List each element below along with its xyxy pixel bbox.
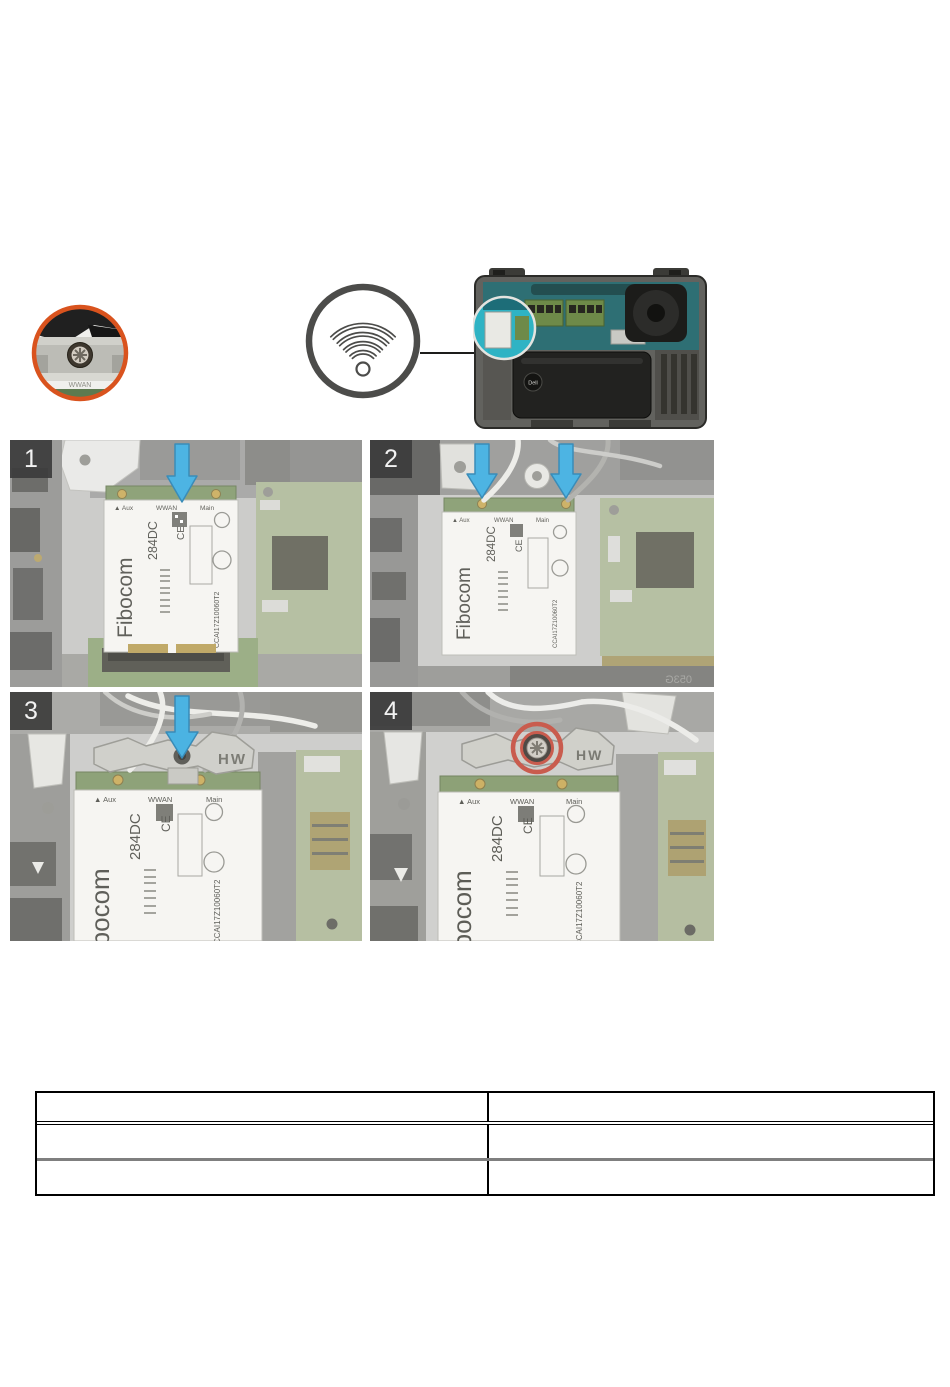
laptop-internals-photo: Dell: [473, 268, 708, 434]
table-cell: [489, 1161, 933, 1194]
table-cell: [489, 1125, 933, 1158]
table-cell: [37, 1093, 489, 1121]
fan: [625, 284, 687, 342]
table-row: [37, 1125, 933, 1161]
wireless-icon: [303, 281, 423, 401]
steps-grid: 1: [10, 440, 714, 941]
info-table: [35, 1091, 935, 1196]
step-panel-3: 3: [10, 692, 362, 941]
step-number-badge: 1: [10, 440, 52, 478]
table-cell: [489, 1093, 933, 1121]
table-cell: [37, 1125, 489, 1158]
step2-photo: 053G ▲ Aux WWAN Main Fibocom 284DC: [370, 440, 714, 687]
step-panel-2: 2: [370, 440, 714, 687]
step-number-badge: 4: [370, 692, 412, 730]
table-row: [37, 1161, 933, 1194]
step-number-badge: 2: [370, 440, 412, 478]
manual-page: WWAN: [0, 0, 950, 1387]
battery-brand-label: Dell: [528, 381, 537, 387]
step-panel-1: 1: [10, 440, 362, 687]
wwan-screw-photo: WWAN: [30, 303, 130, 403]
step4-photo: ▲ Aux WWAN Main Fibocom 284DC CE: [370, 692, 714, 941]
step-panel-4: 4: [370, 692, 714, 941]
table-header-row: [37, 1093, 933, 1125]
battery: Dell: [513, 352, 651, 418]
wwan-label: WWAN: [69, 382, 92, 389]
step3-photo: ▲ Aux WWAN Main Fibocom 284DC CE: [10, 692, 362, 941]
table-cell: [37, 1161, 489, 1194]
step-number-badge: 3: [10, 692, 52, 730]
step1-photo: ▲ Aux WWAN Main Fibocom 284DC CE: [10, 440, 362, 687]
wwan-screw-callout: WWAN: [30, 303, 130, 403]
